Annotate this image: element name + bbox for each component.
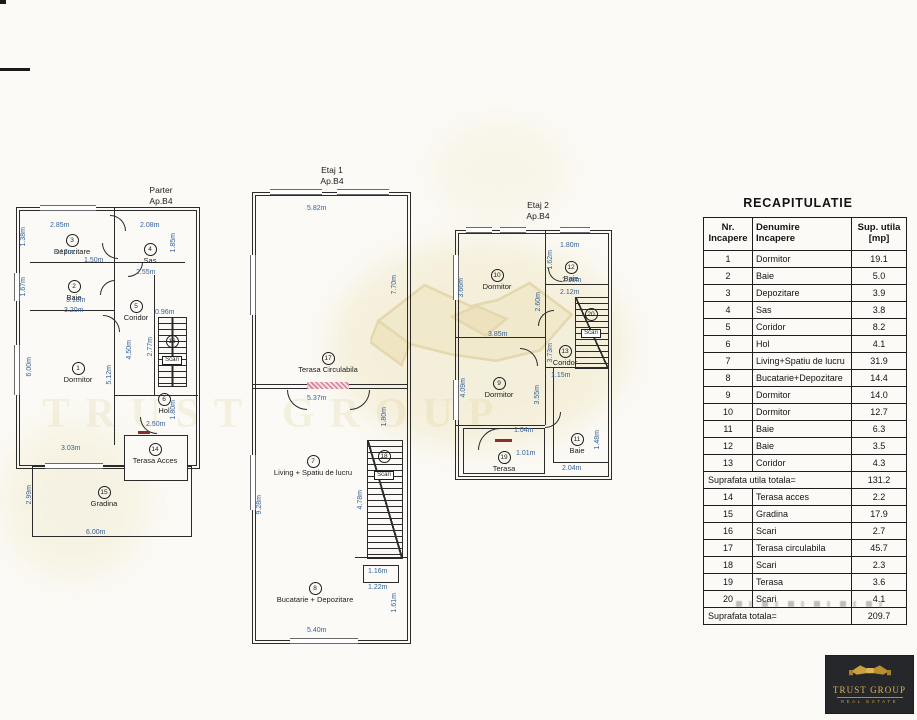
cell-name: Baie	[753, 268, 852, 285]
cell-nr: 4	[704, 302, 753, 319]
table-row: 10 Dormitor 12.7	[704, 404, 907, 421]
table-row: 5 Coridor 8.2	[704, 319, 907, 336]
cell-value: 8.2	[852, 319, 907, 336]
dim-buc-h: 1.61m	[391, 593, 398, 612]
room-number: 12	[565, 261, 578, 274]
trust-group-logo: TRUST GROUP REAL ESTATE	[826, 656, 913, 713]
table-row: 13 Coridor 4.3	[704, 455, 907, 472]
cell-nr: 14	[704, 489, 753, 506]
cell-nr: 9	[704, 387, 753, 404]
dim-dor9-h2: 3.55m	[534, 385, 541, 404]
room-number: 15	[98, 486, 111, 499]
room-number: 19	[498, 451, 511, 464]
logo-rule	[837, 697, 903, 698]
table-row: 8 Bucatarie+Depozitare 14.4	[704, 370, 907, 387]
room-number: 4	[144, 243, 157, 256]
cell-nr: 5	[704, 319, 753, 336]
cell-name: Dormitor	[753, 404, 852, 421]
dim-liv-w: 5.37m	[307, 395, 326, 402]
dim-baie11-h: 1.48m	[594, 430, 601, 449]
window-mark	[466, 227, 492, 233]
dim-baie12-h: 1.62m	[547, 250, 554, 269]
plan-title-etaj2: Etaj 2 Ap.B4	[503, 200, 573, 222]
cell-name: Coridor	[753, 455, 852, 472]
dim-liv-h: 1.80m	[381, 407, 388, 426]
table-row: 6 Hol 4.1	[704, 336, 907, 353]
room-number: 16	[166, 335, 179, 348]
room-number: 5	[130, 300, 143, 313]
room-number: 18	[378, 450, 391, 463]
subtotal-label: Suprafata utila totala=	[704, 472, 852, 489]
dim-ter-w2: 1.01m	[516, 450, 535, 457]
cell-name: Gradina	[753, 506, 852, 523]
cell-nr: 17	[704, 540, 753, 557]
cell-nr: 8	[704, 370, 753, 387]
table-row: 15 Gradina 17.9	[704, 506, 907, 523]
plan-floor-label: Parter	[149, 185, 172, 195]
dim-ter-w: 1.04m	[514, 427, 533, 434]
threshold-mark	[138, 431, 150, 434]
room-label-terasa-circulabila: 17 Terasa Circulabila	[278, 347, 378, 375]
room-number: 7	[307, 455, 320, 468]
plan-apartment-label: Ap.B4	[320, 176, 343, 186]
cell-nr: 10	[704, 404, 753, 421]
table-row: 7 Living+Spatiu de lucru 31.9	[704, 353, 907, 370]
cell-nr: 11	[704, 421, 753, 438]
cell-value: 17.9	[852, 506, 907, 523]
room-label-living: 7 Living + Spatiu de lucru	[257, 450, 369, 478]
dim-dor9-w: 3.85m	[488, 331, 507, 338]
cell-name: Terasa circulabila	[753, 540, 852, 557]
dim-buc-w: 5.40m	[307, 627, 326, 634]
cell-name: Scari	[753, 523, 852, 540]
window-mark	[250, 255, 256, 315]
cell-value: 4.3	[852, 455, 907, 472]
col-header-denumire: Denumire Incapere	[753, 218, 852, 251]
cell-nr: 2	[704, 268, 753, 285]
room-number: 17	[322, 352, 335, 365]
room-number: 13	[559, 345, 572, 358]
wall	[154, 275, 155, 395]
total-row: Suprafata totala= 209.7	[704, 608, 907, 625]
dim-buc-w2: 1.16m	[368, 568, 387, 575]
floorplan-parter: Parter Ap.B4 3 Depozitare	[14, 185, 214, 557]
table-row: 3 Depozitare 3.9	[704, 285, 907, 302]
recap-rows-1: 1 Dormitor 19.1 2 Baie 5.0 3 Depozitare …	[704, 251, 907, 472]
table-row: 16 Scari 2.7	[704, 523, 907, 540]
cell-nr: 15	[704, 506, 753, 523]
room-label-dormitor-9: 9 Dormitor	[466, 372, 532, 400]
room-number: 2	[68, 280, 81, 293]
plan-apartment-label: Ap.B4	[526, 211, 549, 221]
dim-baie12-w: 1.80m	[560, 242, 579, 249]
recap-table-head: Nr. Incapere Denumire Incapere Sup. util…	[704, 218, 907, 251]
plan-floor-label: Etaj 2	[527, 200, 549, 210]
cell-value: 5.0	[852, 268, 907, 285]
cell-value: 45.7	[852, 540, 907, 557]
cell-nr: 12	[704, 438, 753, 455]
floorplan-etaj1: Etaj 1 Ap.B4 17 Terasa Circulabila 7 Liv…	[245, 165, 420, 660]
cell-name: Sas	[753, 302, 852, 319]
dim-sas-h: 1.85m	[170, 233, 177, 252]
recap-rows-2: 14 Terasa acces 2.2 15 Gradina 17.9 16 S…	[704, 489, 907, 608]
total-label: Suprafata totala=	[704, 608, 852, 625]
room-label-gradina: 15 Gradina	[76, 481, 132, 509]
room-number: 14	[149, 443, 162, 456]
wall	[553, 462, 609, 463]
threshold-mark	[495, 439, 512, 442]
window-mark	[45, 463, 103, 469]
cell-value: 31.9	[852, 353, 907, 370]
dim-gra-h: 2.99m	[26, 485, 33, 504]
dim-baie12-w2: 2.10m	[562, 277, 581, 284]
cell-nr: 18	[704, 557, 753, 574]
cell-value: 14.4	[852, 370, 907, 387]
room-number: 8	[309, 582, 322, 595]
cell-name: Terasa	[753, 574, 852, 591]
cell-value: 14.0	[852, 387, 907, 404]
dim-scari-w: 0.96m	[155, 309, 174, 316]
dim-dep-h: 1.38m	[20, 227, 27, 246]
room-label-scari-20: 20 Scari	[576, 303, 606, 339]
dim-scari-h: 2.77m	[147, 337, 154, 356]
room-number: 10	[491, 269, 504, 282]
cell-value: 12.7	[852, 404, 907, 421]
cell-name: Bucatarie+Depozitare	[753, 370, 852, 387]
scan-artifact-corner	[0, 0, 6, 4]
room-number: 11	[571, 433, 584, 446]
table-row: 4 Sas 3.8	[704, 302, 907, 319]
wall	[545, 284, 609, 285]
subtotal-value: 131.2	[852, 472, 907, 489]
room-number: 3	[66, 234, 79, 247]
room-label-scari: 16 Scari	[159, 330, 185, 366]
dim-baie-w2: 3.18m	[66, 297, 85, 304]
room-label-bucatarie: 8 Bucatarie + Depozitare	[261, 577, 369, 605]
room-label-dormitor: 1 Dormitor	[50, 357, 106, 385]
table-row: 18 Scari 2.3	[704, 557, 907, 574]
dim-baie-w: 1.50m	[84, 257, 103, 264]
dim-cor-h: 4.50m	[126, 340, 133, 359]
cell-nr: 6	[704, 336, 753, 353]
cell-name: Dormitor	[753, 251, 852, 268]
cell-nr: 1	[704, 251, 753, 268]
room-label-terasa-acces: 14 Terasa Acces	[132, 438, 178, 466]
dim-dor9-h: 4.09m	[460, 378, 467, 397]
window-mark	[40, 205, 96, 211]
cell-name: Dormitor	[753, 387, 852, 404]
cell-name: Depozitare	[753, 285, 852, 302]
dim-cor-w: 2.55m	[136, 269, 155, 276]
table-row: 12 Baie 3.5	[704, 438, 907, 455]
subtotal-row: Suprafata utila totala= 131.2	[704, 472, 907, 489]
dim-liv-h2: 9.28m	[256, 495, 263, 514]
dim-baie-h: 1.67m	[20, 277, 27, 296]
dim-baie11-w: 2.04m	[562, 465, 581, 472]
table-row: 2 Baie 5.0	[704, 268, 907, 285]
cell-nr: 13	[704, 455, 753, 472]
dim-dor10-h: 3.66m	[458, 278, 465, 297]
window-mark	[270, 189, 322, 195]
room-label-coridor: 5 Coridor	[116, 295, 156, 323]
scanned-floorplan-page: TRUST GROUP Parter Ap.B4	[0, 0, 917, 720]
recap-table: Nr. Incapere Denumire Incapere Sup. util…	[703, 217, 907, 625]
dim-hol-w: 2.50m	[146, 421, 165, 428]
cell-value: 3.9	[852, 285, 907, 302]
recap-subtotal: Suprafata utila totala= 131.2	[704, 472, 907, 489]
plan-apartment-label: Ap.B4	[149, 196, 172, 206]
cell-value: 6.3	[852, 421, 907, 438]
cell-name: Hol	[753, 336, 852, 353]
cell-name: Coridor	[753, 319, 852, 336]
table-row: 9 Dormitor 14.0	[704, 387, 907, 404]
cell-value: 3.5	[852, 438, 907, 455]
table-row: 17 Terasa circulabila 45.7	[704, 540, 907, 557]
table-row: 14 Terasa acces 2.2	[704, 489, 907, 506]
col-header-suprafata: Sup. utila [mp]	[852, 218, 907, 251]
cell-value: 3.6	[852, 574, 907, 591]
recap-total: Suprafata totala= 209.7	[704, 608, 907, 625]
dim-ter-w: 5.82m	[307, 205, 326, 212]
room-number: 1	[72, 362, 85, 375]
dim-dor-h2: 5.12m	[106, 365, 113, 384]
handshake-icon	[849, 661, 891, 679]
room-number: 6	[158, 393, 171, 406]
recap-title: RECAPITULATIE	[703, 196, 893, 210]
window-mark	[500, 227, 526, 233]
cell-name: Living+Spatiu de lucru	[753, 353, 852, 370]
dim-ter-h: 7.70m	[391, 275, 398, 294]
cell-value: 4.1	[852, 336, 907, 353]
dim-wall-h: 2.60m	[535, 292, 542, 311]
dim-cor-h: 3.73m	[547, 343, 554, 362]
room-label-sas: 4 Sas	[132, 238, 168, 266]
plan-floor-label: Etaj 1	[321, 165, 343, 175]
cell-name: Terasa acces	[753, 489, 852, 506]
floorplan-etaj2: Etaj 2 Ap.B4 10 Dormitor	[448, 200, 618, 495]
dim-hol-h: 1.80m	[170, 400, 177, 419]
dim-sas-w: 2.08m	[140, 222, 159, 229]
cell-value: 2.2	[852, 489, 907, 506]
window-mark	[14, 345, 20, 395]
cell-nr: 16	[704, 523, 753, 540]
dim-dor-w2: 3.03m	[61, 445, 80, 452]
plan-title-parter: Parter Ap.B4	[126, 185, 196, 207]
dim-cor-w2: 1.15m	[551, 372, 570, 379]
room-label-scari: 18 Scari	[371, 445, 397, 481]
scan-artifact-line	[0, 68, 30, 71]
logo-name: TRUST GROUP	[826, 685, 913, 695]
plan-title-etaj1: Etaj 1 Ap.B4	[297, 165, 367, 187]
room-number: 9	[493, 377, 506, 390]
total-value: 209.7	[852, 608, 907, 625]
window-mark	[560, 227, 590, 233]
cell-nr: 19	[704, 574, 753, 591]
dim-cor-w: 2.12m	[560, 289, 579, 296]
cell-name: Scari	[753, 557, 852, 574]
cell-value: 19.1	[852, 251, 907, 268]
dim-dor-w: 3.20m	[64, 307, 83, 314]
table-row: 1 Dormitor 19.1	[704, 251, 907, 268]
dim-buc-w3: 1.22m	[368, 584, 387, 591]
window-mark	[290, 638, 358, 644]
cell-nr: 7	[704, 353, 753, 370]
room-number: 20	[585, 308, 598, 321]
cell-name: Baie	[753, 421, 852, 438]
room-label-dormitor-10: 10 Dormitor	[462, 264, 532, 292]
dim-scari-h: 4.78m	[357, 490, 364, 509]
room-label-baie-11: 11 Baie	[558, 428, 596, 456]
cell-value: 3.8	[852, 302, 907, 319]
dim-dor-h: 6.00m	[26, 357, 33, 376]
cell-value: 2.3	[852, 557, 907, 574]
threshold-hatch	[307, 382, 349, 389]
cell-name: Baie	[753, 438, 852, 455]
dim-dep-w2: 3.17m	[54, 249, 73, 256]
recap-section: RECAPITULATIE Nr. Incapere Denumire Inca…	[703, 196, 907, 625]
cell-nr: 3	[704, 285, 753, 302]
logo-tagline: REAL ESTATE	[826, 699, 913, 704]
table-row: 11 Baie 6.3	[704, 421, 907, 438]
window-mark	[337, 189, 389, 195]
dim-dep-w: 2.85m	[50, 222, 69, 229]
col-header-nr: Nr. Incapere	[704, 218, 753, 251]
table-row: 19 Terasa 3.6	[704, 574, 907, 591]
dim-gra-w: 6.00m	[86, 529, 105, 536]
window-mark	[453, 380, 459, 420]
handwritten-smudge	[736, 601, 884, 607]
cell-value: 2.7	[852, 523, 907, 540]
